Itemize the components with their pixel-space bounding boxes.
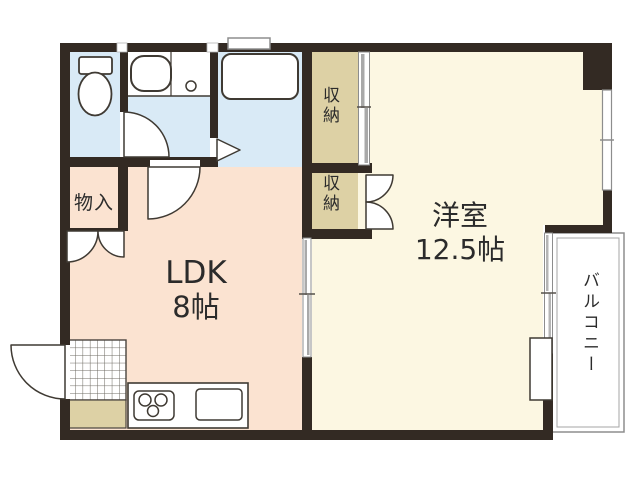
wall-niche-box xyxy=(530,338,552,400)
toilet-icon xyxy=(79,57,113,116)
wall-center-upper xyxy=(302,52,312,238)
sink-basin-icon xyxy=(131,56,171,91)
wall-storage2-bottom xyxy=(302,229,372,239)
label-western-room-size: 12.5帖 xyxy=(370,233,550,267)
right-wall-window xyxy=(600,90,614,190)
wall-toilet-washroom xyxy=(120,52,128,112)
wall-balcony-top xyxy=(545,225,612,233)
top-wall-vent-2 xyxy=(207,43,218,52)
storage-upper-sliding-door xyxy=(357,52,371,165)
bath-window xyxy=(228,38,270,49)
label-ldk-size: 8帖 xyxy=(121,291,271,323)
label-ldk: LDK 8帖 xyxy=(121,256,271,323)
kitchen-counter xyxy=(128,383,248,428)
label-storage-upper: 収納 xyxy=(317,86,342,126)
label-storage-lower: 収納 xyxy=(317,174,342,214)
label-balcony: バルコニー xyxy=(577,271,602,376)
genkan-step xyxy=(68,400,126,428)
kitchen-sink-icon xyxy=(196,389,242,420)
wall-center-lower xyxy=(302,357,312,430)
drain-icon xyxy=(186,81,196,91)
label-western-room-name: 洋室 xyxy=(370,199,550,233)
label-closet: 物入 xyxy=(66,188,122,215)
floor-plan: 物入 収納 収納 LDK 8帖 洋室 12.5帖 バルコニー xyxy=(0,0,640,480)
wall-washroom-bath xyxy=(210,52,218,138)
bathtub-icon xyxy=(222,54,298,99)
door-opening-washroom xyxy=(150,160,200,167)
label-ldk-name: LDK xyxy=(121,256,271,291)
entrance-door-swing xyxy=(11,345,65,399)
stove-icon xyxy=(134,391,174,420)
wall-bottom xyxy=(60,430,553,440)
wall-top xyxy=(60,43,612,52)
genkan-tile xyxy=(68,340,126,400)
top-wall-vent-1 xyxy=(117,43,127,52)
corner-pillar xyxy=(583,52,612,90)
label-western-room: 洋室 12.5帖 xyxy=(370,199,550,266)
